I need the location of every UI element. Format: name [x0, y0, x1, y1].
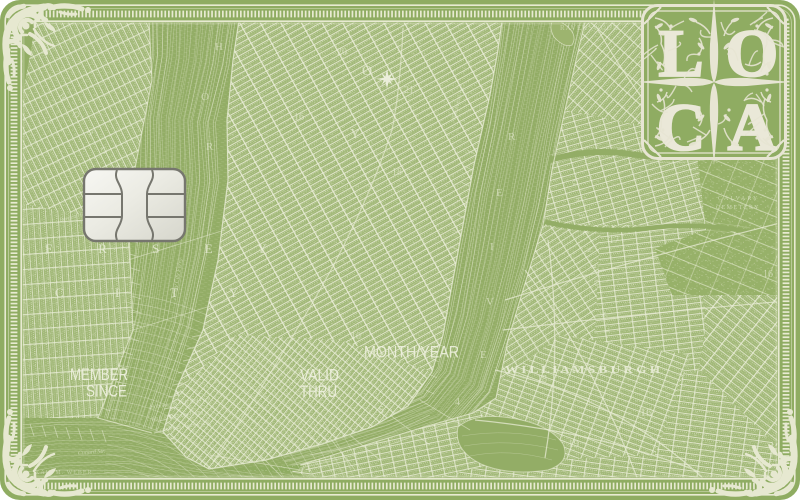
svg-text:C I T Y: C I T Y: [55, 285, 262, 300]
svg-text:H: H: [215, 41, 223, 53]
svg-text:L: L: [658, 15, 703, 91]
svg-text:20: 20: [337, 47, 347, 58]
svg-text:O: O: [201, 91, 209, 103]
svg-text:O: O: [362, 64, 372, 79]
svg-text:V: V: [486, 296, 494, 308]
svg-text:E: E: [496, 187, 503, 199]
svg-text:SINCE: SINCE: [86, 382, 127, 401]
svg-text:R: R: [206, 141, 214, 153]
svg-text:21: 21: [404, 85, 414, 96]
svg-text:17: 17: [609, 235, 619, 246]
svg-text:I: I: [490, 241, 494, 253]
svg-text:S: S: [378, 404, 384, 416]
svg-text:4: 4: [455, 397, 460, 408]
svg-text:THRU: THRU: [300, 382, 337, 401]
svg-text:E R S E Y: E R S E Y: [45, 241, 288, 256]
svg-text:E: E: [480, 349, 487, 361]
svg-text:R: R: [508, 131, 516, 143]
svg-text:16: 16: [763, 269, 773, 280]
svg-text:RAVENSWOOD: RAVENSWOOD: [560, 24, 619, 32]
svg-text:18: 18: [537, 374, 547, 385]
svg-text:16: 16: [294, 112, 304, 123]
svg-text:CEMETERY: CEMETERY: [716, 205, 760, 211]
svg-text:16: 16: [640, 405, 652, 419]
svg-text:10: 10: [351, 331, 361, 342]
svg-text:W I L L I A M S B U R G H: W I L L I A M S B U R G H: [505, 364, 661, 376]
svg-text:18: 18: [392, 167, 402, 178]
svg-text:19: 19: [568, 438, 580, 450]
svg-text:MONTH/YEAR: MONTH/YEAR: [364, 343, 459, 362]
svg-text:Y: Y: [350, 127, 360, 142]
svg-text:KAUFM. WEBER: KAUFM. WEBER: [35, 470, 93, 476]
svg-text:CALVARY: CALVARY: [718, 196, 759, 202]
